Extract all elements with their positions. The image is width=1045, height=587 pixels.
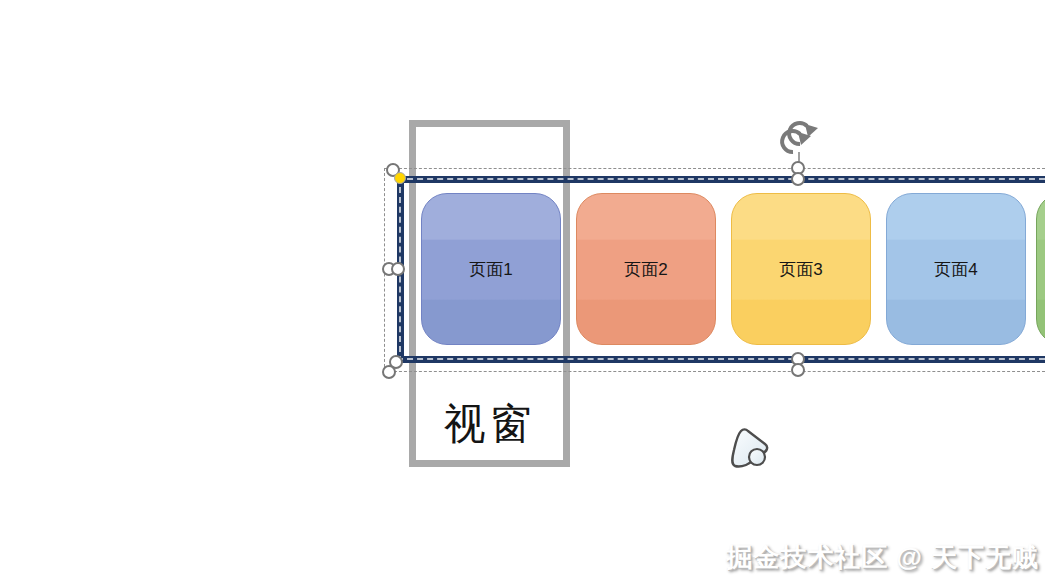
viewport-frame-label: 视窗 [416, 396, 563, 452]
page-label: 页面3 [779, 258, 822, 281]
resize-handle[interactable] [791, 363, 805, 377]
slide-canvas[interactable]: 视窗 页面1页面2页面3页面4 [0, 0, 1045, 587]
resize-handle[interactable] [391, 262, 405, 276]
page-shape[interactable]: 页面3 [731, 193, 871, 345]
resize-handle[interactable] [382, 365, 396, 379]
watermark-text: 掘金技术社区 @ 天下无贼 [726, 540, 1039, 575]
cursor-icon [725, 424, 775, 472]
mouse-cursor [725, 424, 775, 476]
page-shape[interactable] [1036, 193, 1045, 345]
resize-handle[interactable] [791, 172, 805, 186]
adjust-handle[interactable] [394, 172, 406, 184]
page-label: 页面1 [469, 258, 512, 281]
rotation-handle[interactable] [776, 104, 824, 170]
page-label: 页面2 [624, 258, 667, 281]
rotate-icon [776, 104, 824, 166]
page-label: 页面4 [934, 258, 977, 281]
page-shape[interactable]: 页面1 [421, 193, 561, 345]
page-shape[interactable]: 页面4 [886, 193, 1026, 345]
page-shape[interactable]: 页面2 [576, 193, 716, 345]
